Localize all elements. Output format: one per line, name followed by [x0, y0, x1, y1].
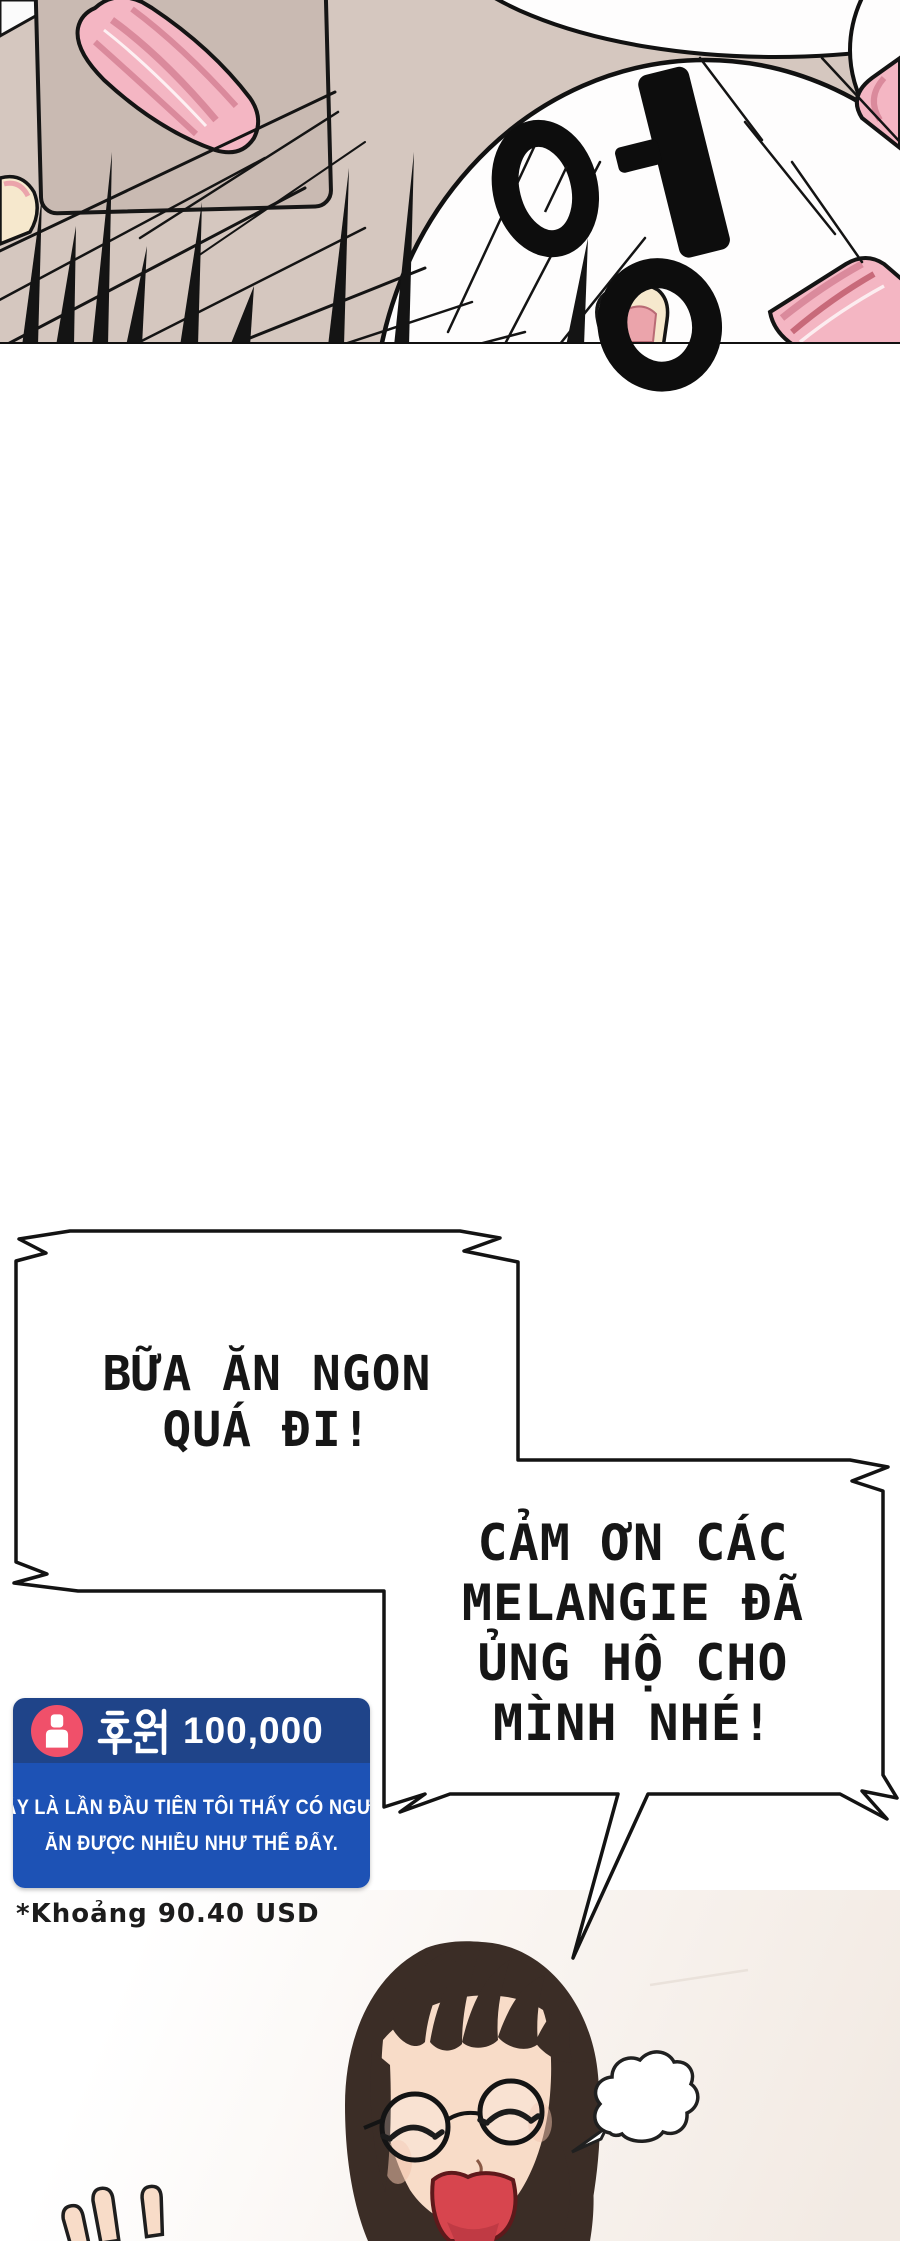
bubble2-text-line1: CẢM ƠN CÁC [384, 1514, 882, 1572]
person-icon [40, 1713, 74, 1749]
donation-amount: 100,000 [183, 1710, 324, 1752]
bubble2-text-line2: MELANGIE ĐÃ [384, 1574, 882, 1632]
character-illustration [0, 1890, 900, 2241]
background-crease [650, 1970, 748, 1985]
donation-message-line2: ĂN ĐƯỢC NHIỀU NHƯ THẾ ĐẤY. [45, 1826, 338, 1862]
donation-card-body: ĐÂY LÀ LẦN ĐẦU TIÊN TÔI THẤY CÓ NGƯỜI ĂN… [13, 1763, 370, 1888]
bubble2-text-line4: MÌNH NHÉ! [384, 1694, 882, 1752]
bubble2-text-line3: ỦNG HỘ CHO [384, 1634, 882, 1692]
waving-hand [60, 2180, 167, 2241]
donation-card: 100,000 ĐÂY LÀ LẦN ĐẦU TIÊN TÔI THẤY CÓ … [13, 1698, 370, 1888]
bubble1-text-line2: QUÁ ĐI! [17, 1402, 517, 1458]
top-panel [0, 0, 900, 400]
bubble1-text-line1: BỮA ĂN NGON [17, 1346, 517, 1402]
donation-card-header: 100,000 [13, 1698, 370, 1763]
donation-message-line1: ĐÂY LÀ LẦN ĐẦU TIÊN TÔI THẤY CÓ NGƯỜI [13, 1790, 370, 1826]
webtoon-page: BỮA ĂN NGON QUÁ ĐI! CẢM ƠN CÁC MELANGIE … [0, 0, 900, 2241]
donor-avatar-icon [31, 1705, 83, 1757]
open-mouth [432, 2173, 515, 2241]
korean-label-hoowon [97, 1707, 171, 1755]
